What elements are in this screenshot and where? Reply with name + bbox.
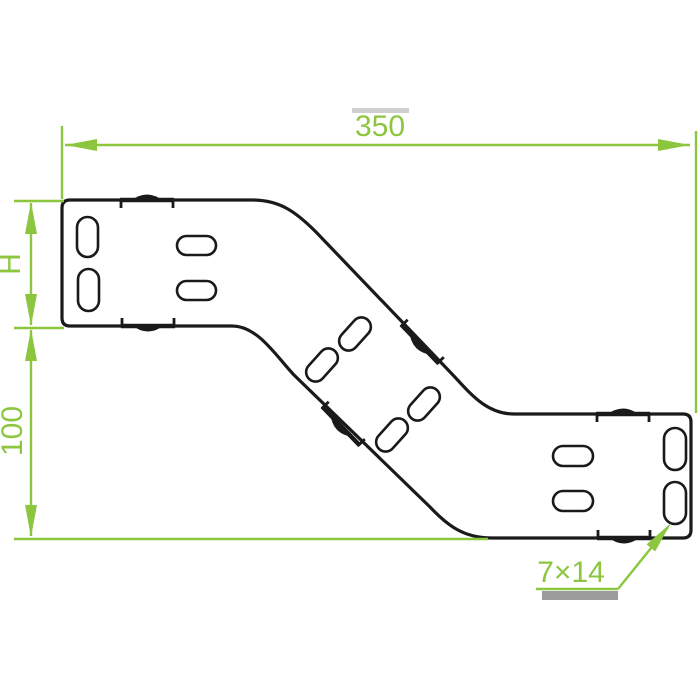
arrow-head-right	[658, 139, 690, 151]
slot-hole	[664, 428, 686, 470]
arrow-head-left	[65, 139, 97, 151]
dimension-label-width: 350	[355, 110, 405, 143]
s-offset-part-drawing: 350 H 100 7×14	[0, 0, 700, 700]
dimension-height-side: H	[0, 201, 64, 328]
slot-hole	[553, 446, 593, 466]
dimension-label-height-drop: 100	[0, 406, 29, 456]
slot-hole	[77, 217, 98, 257]
slot-hole	[177, 281, 216, 300]
arrow-head-down	[25, 505, 37, 537]
part-outline	[62, 200, 691, 538]
arrow-head-up	[25, 329, 37, 361]
slot-hole	[78, 269, 99, 311]
shadow-artifact	[542, 591, 618, 600]
slot-size-label: 7×14	[537, 556, 605, 589]
technical-drawing-canvas: 350 H 100 7×14	[0, 0, 700, 700]
slot-hole	[664, 482, 686, 524]
arrow-head-up	[25, 202, 37, 234]
slot-hole	[177, 236, 216, 255]
slot-hole	[553, 491, 593, 511]
dimension-label-height-side: H	[0, 253, 27, 275]
arrow-head-down	[25, 294, 37, 326]
